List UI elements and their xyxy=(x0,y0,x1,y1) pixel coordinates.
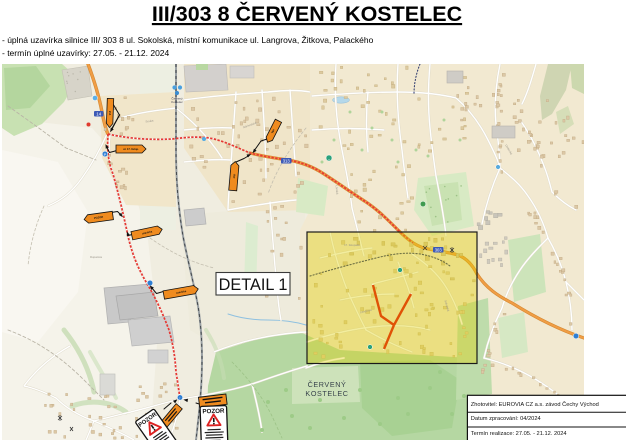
svg-text:14: 14 xyxy=(96,112,101,117)
svg-text:I/14: I/14 xyxy=(108,111,112,116)
svg-text:313: 313 xyxy=(283,159,291,164)
svg-text:DETAIL 1: DETAIL 1 xyxy=(219,276,288,294)
svg-text:Datum zpracování: 04/2024: Datum zpracování: 04/2024 xyxy=(471,416,541,422)
svg-text:- termín úplné uzavírky: 27.05: - termín úplné uzavírky: 27.05. - 21.12.… xyxy=(2,48,170,58)
svg-text:ul. 17. listop.: ul. 17. listop. xyxy=(123,147,139,151)
svg-text:III/303 8 ČERVENÝ KOSTELEC: III/303 8 ČERVENÝ KOSTELEC xyxy=(152,1,462,26)
svg-text:303: 303 xyxy=(435,248,443,253)
svg-text:↑: ↑ xyxy=(179,397,181,401)
svg-text:P: P xyxy=(104,152,107,157)
svg-text:Dupanica: Dupanica xyxy=(90,255,102,259)
svg-text:ČERVENÝ: ČERVENÝ xyxy=(308,380,347,389)
svg-text:Kostelec: Kostelec xyxy=(171,100,183,104)
svg-text:17. listopadu: 17. listopadu xyxy=(344,243,360,247)
svg-text:Zhotovitel: EUROVIA CZ a.s. zá: Zhotovitel: EUROVIA CZ a.s. závod Čechy … xyxy=(471,401,599,408)
svg-text:Termín realizace: 27.05. - 21.: Termín realizace: 27.05. - 21.12. 2024 xyxy=(471,431,567,437)
svg-text:↔: ↔ xyxy=(327,157,331,161)
svg-text:- úplná uzavírka silnice III/: - úplná uzavírka silnice III/ 303 8 ul. … xyxy=(2,35,374,45)
svg-text:Lánská: Lánská xyxy=(335,185,340,195)
svg-text:obj.: obj. xyxy=(232,173,236,178)
svg-text:KOSTELEC: KOSTELEC xyxy=(305,389,348,398)
